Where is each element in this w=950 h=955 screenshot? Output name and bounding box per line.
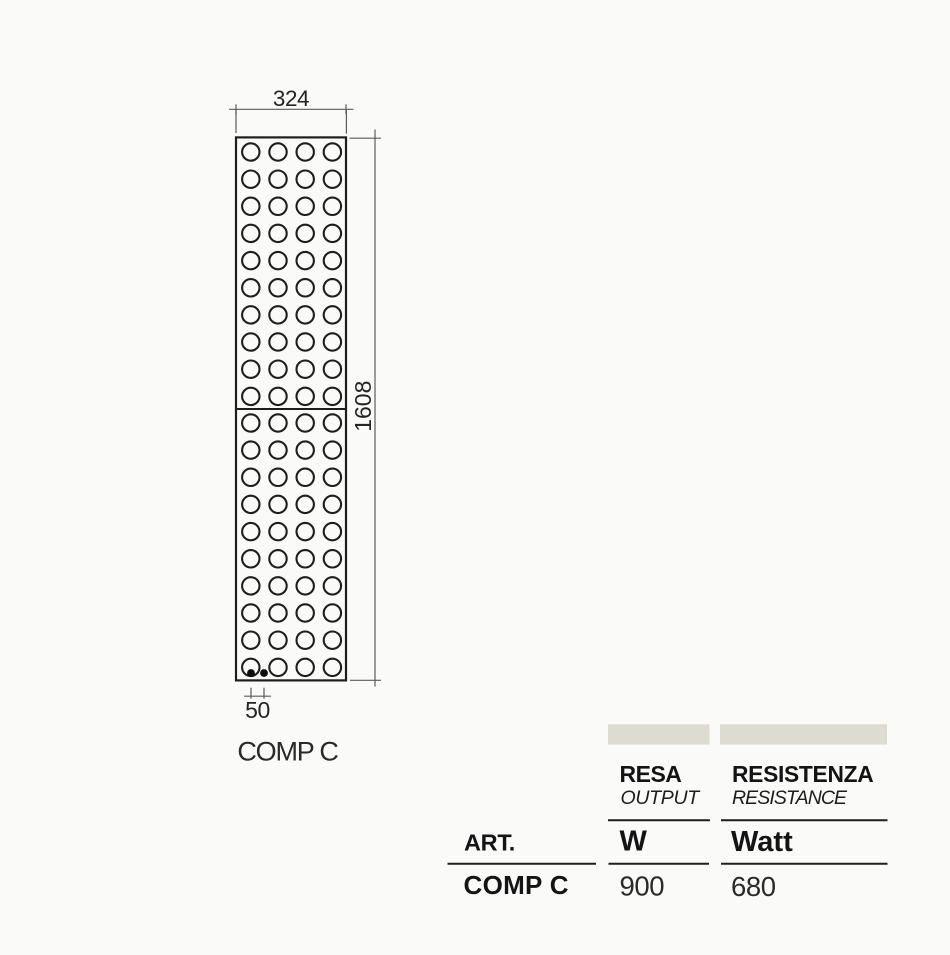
svg-text:RESA: RESA bbox=[620, 761, 682, 787]
svg-text:RESISTANCE: RESISTANCE bbox=[732, 787, 848, 809]
svg-text:1608: 1608 bbox=[350, 381, 376, 432]
svg-text:COMP C: COMP C bbox=[464, 870, 569, 900]
svg-text:324: 324 bbox=[273, 86, 309, 111]
svg-text:W: W bbox=[620, 826, 648, 858]
svg-text:680: 680 bbox=[731, 871, 776, 902]
svg-text:50: 50 bbox=[245, 697, 270, 723]
svg-text:ART.: ART. bbox=[464, 830, 515, 856]
svg-text:COMP C: COMP C bbox=[237, 737, 338, 767]
svg-text:RESISTENZA: RESISTENZA bbox=[732, 761, 873, 787]
svg-text:Watt: Watt bbox=[731, 826, 793, 858]
svg-text:900: 900 bbox=[620, 870, 665, 901]
svg-text:OUTPUT: OUTPUT bbox=[621, 787, 702, 809]
